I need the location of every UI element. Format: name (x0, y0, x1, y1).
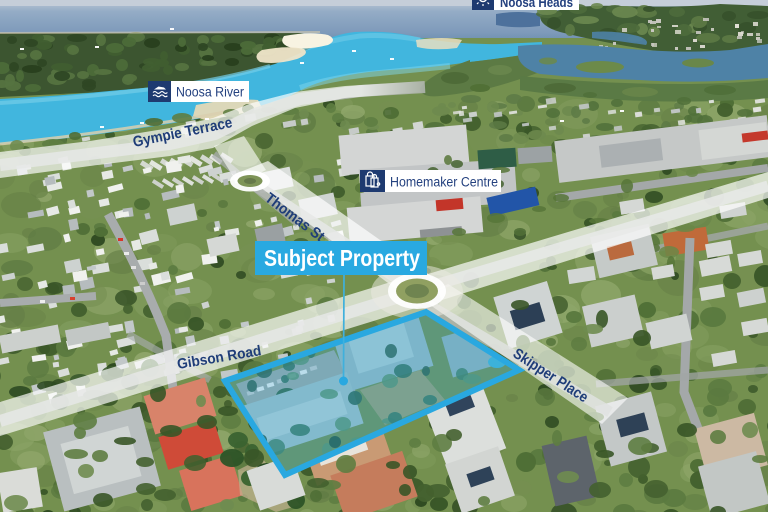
svg-text:Subject Property: Subject Property (264, 245, 420, 271)
svg-text:Noosa Heads: Noosa Heads (500, 0, 573, 10)
svg-text:Noosa River: Noosa River (176, 84, 244, 100)
svg-text:Homemaker Centre: Homemaker Centre (390, 175, 498, 190)
